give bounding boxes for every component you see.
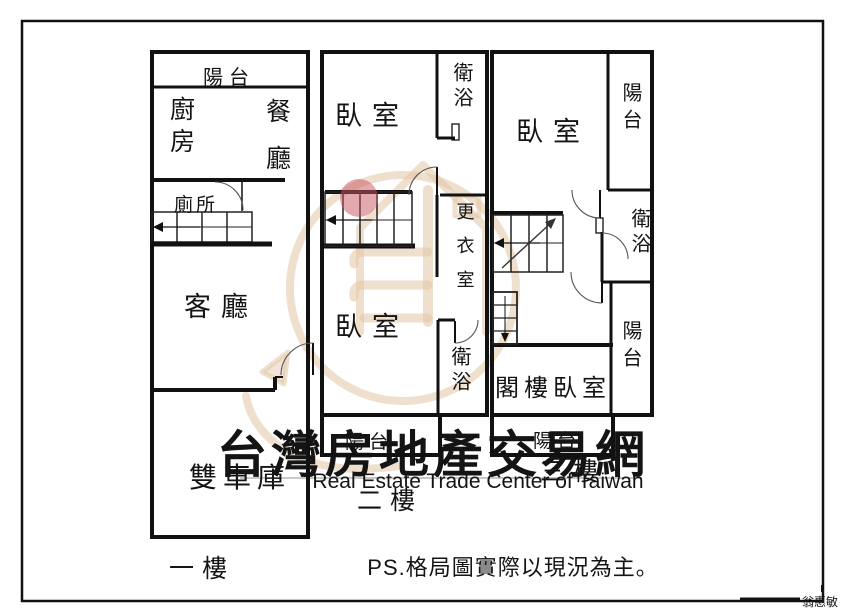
- disclaimer-note: PS.格局圖實際以現況為主。: [367, 555, 658, 580]
- floor2-bedroom-top-label: 臥室: [335, 101, 409, 132]
- stairs-arrow-icon: [494, 238, 504, 248]
- floor1-balcony-label: 陽台: [203, 65, 255, 89]
- location-marker: [340, 179, 378, 217]
- floor3-stairs: [493, 215, 563, 272]
- floor3-attic-bedroom-label: 閣樓臥室: [495, 374, 611, 402]
- floor2-label: 二樓: [357, 486, 423, 515]
- floor2-bath-door-arc: [455, 320, 478, 343]
- floor3-label: 三樓: [540, 457, 606, 486]
- floor2-bath-top-label: 衛浴: [450, 62, 474, 112]
- floor3-balcony-mid-label: 陽台: [619, 320, 643, 374]
- floor1-garage-label: 雙車庫: [189, 461, 291, 494]
- floor3-bedroom-label: 臥室: [516, 117, 590, 148]
- floor2-bath-bottom-label: 衛浴: [448, 346, 472, 396]
- floor1-dining-label: 餐廳: [263, 98, 292, 192]
- stairs-arrow-icon: [153, 222, 163, 232]
- floor1-toilet-door-arc: [215, 182, 243, 210]
- floor-plan-canvas: 台灣房地產交易網 Real Estate Trade Center of Tai…: [0, 0, 845, 613]
- floor3-balcony-top-label: 陽台: [619, 82, 643, 136]
- floor1-stairs: [152, 212, 272, 244]
- floor1-plan: 陽台 廚房 餐廳 廁所 客廳 雙車庫 一樓: [152, 52, 313, 583]
- stairs-arrow-icon: [326, 215, 336, 225]
- floor2-bedroom-bottom-label: 臥室: [335, 312, 409, 343]
- floor3-bath-label: 衛浴: [628, 208, 652, 258]
- floor-plan-page: 台灣房地產交易網 Real Estate Trade Center of Tai…: [0, 0, 845, 613]
- floor1-toilet-label: 廁所: [174, 193, 218, 216]
- floor3-bath-door-arc: [602, 233, 628, 259]
- floor1-label: 一樓: [169, 554, 235, 583]
- floor3-balcony-bottom-label: 陽台: [533, 430, 581, 452]
- floor2-closet-label: 更衣室: [454, 202, 475, 304]
- signature-text: 翁惠敏: [802, 594, 838, 609]
- floor3-attic-door-arc: [571, 272, 602, 303]
- floor1-kitchen-label: 廚房: [167, 96, 196, 160]
- floor3-balcony-door-arc: [572, 190, 600, 218]
- floor2-balcony-label: 陽台: [345, 431, 393, 453]
- floor1-living-label: 客廳: [184, 292, 258, 323]
